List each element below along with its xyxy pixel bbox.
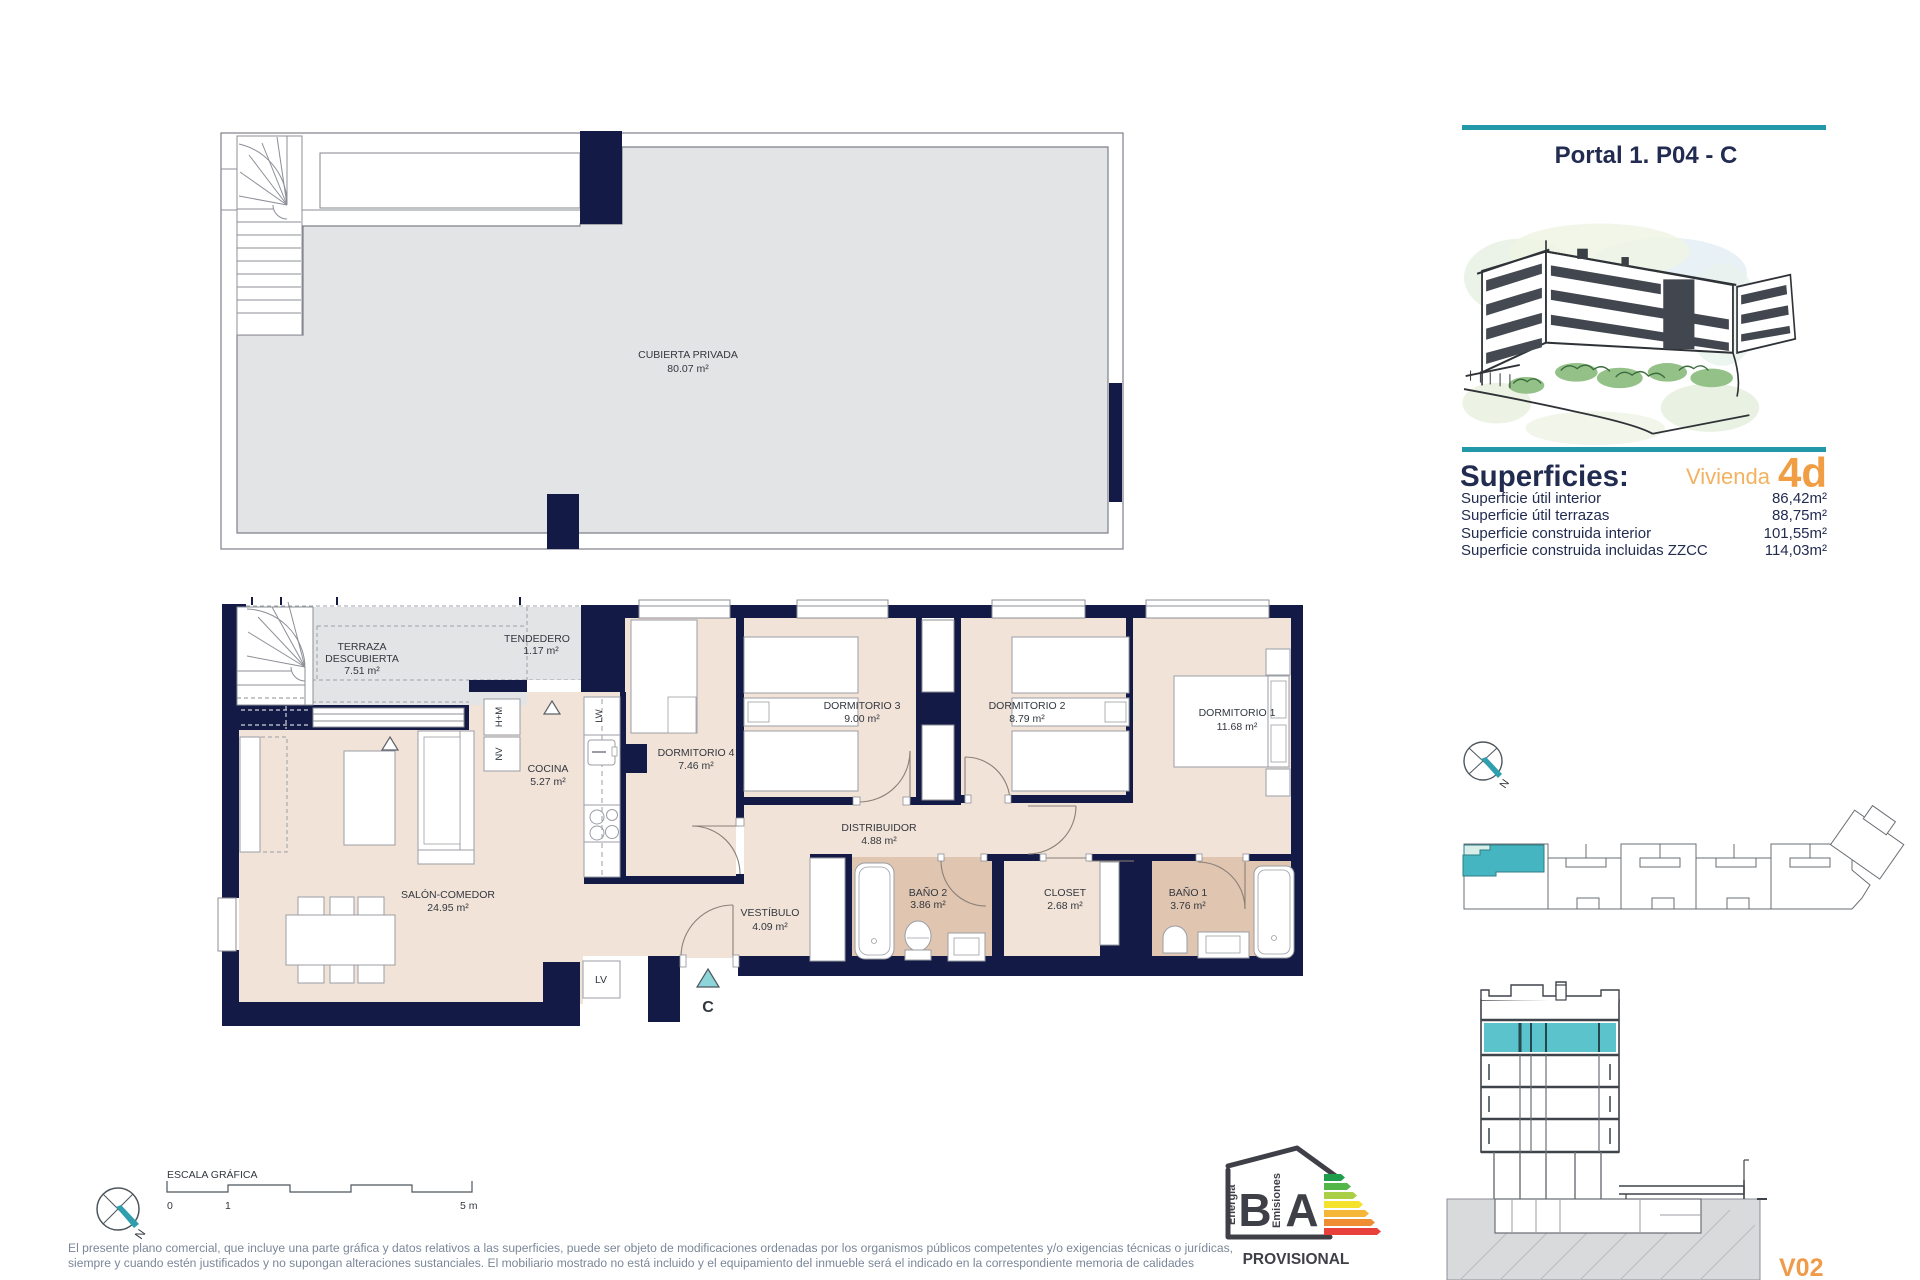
svg-text:88,75m²: 88,75m²	[1772, 507, 1827, 524]
svg-text:101,55m²: 101,55m²	[1764, 525, 1827, 542]
svg-text:0: 0	[167, 1200, 173, 1212]
svg-text:LW: LW	[594, 709, 605, 723]
svg-text:5.27 m²: 5.27 m²	[530, 776, 566, 788]
svg-text:11.68 m²: 11.68 m²	[1217, 721, 1258, 733]
svg-text:VESTÍBULO: VESTÍBULO	[741, 906, 800, 919]
svg-text:4.09 m²: 4.09 m²	[752, 921, 788, 933]
svg-text:DISTRIBUIDOR: DISTRIBUIDOR	[841, 822, 917, 834]
svg-text:Emisiones: Emisiones	[1271, 1173, 1283, 1228]
svg-text:DORMITORIO 1: DORMITORIO 1	[1199, 707, 1276, 719]
svg-text:2.68 m²: 2.68 m²	[1047, 900, 1083, 912]
svg-text:86,42m²: 86,42m²	[1772, 490, 1827, 507]
svg-text:1: 1	[225, 1200, 231, 1212]
svg-text:7.46 m²: 7.46 m²	[678, 760, 714, 772]
svg-text:Superficies:: Superficies:	[1460, 460, 1629, 493]
svg-text:Superficie construida interior: Superficie construida interior	[1461, 525, 1651, 542]
svg-text:C: C	[702, 999, 714, 1016]
svg-text:5 m: 5 m	[460, 1200, 478, 1212]
svg-text:Superficie construida incluida: Superficie construida incluidas ZZCC	[1461, 542, 1708, 559]
svg-text:114,03m²: 114,03m²	[1765, 542, 1827, 559]
svg-text:1.17 m²: 1.17 m²	[523, 645, 559, 657]
svg-text:V02: V02	[1779, 1254, 1823, 1280]
svg-text:DORMITORIO 4: DORMITORIO 4	[658, 747, 735, 759]
svg-text:80.07 m²: 80.07 m²	[667, 363, 709, 375]
svg-text:DESCUBIERTA: DESCUBIERTA	[325, 653, 399, 665]
svg-text:COCINA: COCINA	[528, 763, 569, 775]
svg-text:CUBIERTA PRIVADA: CUBIERTA PRIVADA	[638, 349, 738, 361]
svg-text:TERRAZA: TERRAZA	[337, 641, 386, 653]
svg-text:24.95 m²: 24.95 m²	[427, 902, 469, 914]
svg-text:DORMITORIO 3: DORMITORIO 3	[824, 700, 901, 712]
svg-text:TENDEDERO: TENDEDERO	[504, 633, 570, 645]
svg-text:9.00 m²: 9.00 m²	[844, 713, 880, 725]
svg-text:DORMITORIO 2: DORMITORIO 2	[989, 700, 1066, 712]
svg-text:3.86 m²: 3.86 m²	[910, 899, 946, 911]
svg-text:Superficie útil interior: Superficie útil interior	[1461, 490, 1601, 507]
svg-text:ESCALA GRÁFICA: ESCALA GRÁFICA	[167, 1168, 257, 1181]
svg-text:4.88 m²: 4.88 m²	[861, 835, 897, 847]
svg-text:siempre y cuando estén justifi: siempre y cuando estén justificados y no…	[68, 1256, 1194, 1270]
svg-text:7.51 m²: 7.51 m²	[344, 665, 380, 677]
svg-text:Portal 1. P04 - C: Portal 1. P04 - C	[1555, 142, 1738, 169]
svg-text:Superficie útil terrazas: Superficie útil terrazas	[1461, 507, 1609, 524]
svg-text:4d: 4d	[1778, 449, 1827, 496]
svg-text:LV: LV	[595, 974, 607, 986]
svg-text:BAÑO 1: BAÑO 1	[1169, 886, 1208, 899]
svg-text:NV: NV	[494, 747, 505, 761]
svg-text:B: B	[1238, 1184, 1271, 1236]
svg-text:H+M: H+M	[494, 707, 505, 727]
svg-text:Energía: Energía	[1226, 1184, 1238, 1225]
svg-text:PROVISIONAL: PROVISIONAL	[1243, 1251, 1350, 1268]
svg-text:Vivienda: Vivienda	[1686, 464, 1771, 489]
svg-text:BAÑO 2: BAÑO 2	[909, 886, 948, 899]
svg-text:3.76 m²: 3.76 m²	[1170, 900, 1206, 912]
svg-text:El presente plano comercial, q: El presente plano comercial, que incluye…	[68, 1241, 1233, 1255]
svg-text:8.79 m²: 8.79 m²	[1009, 713, 1045, 725]
svg-text:CLOSET: CLOSET	[1044, 887, 1087, 899]
svg-text:A: A	[1285, 1184, 1318, 1236]
svg-text:SALÓN-COMEDOR: SALÓN-COMEDOR	[401, 888, 495, 901]
